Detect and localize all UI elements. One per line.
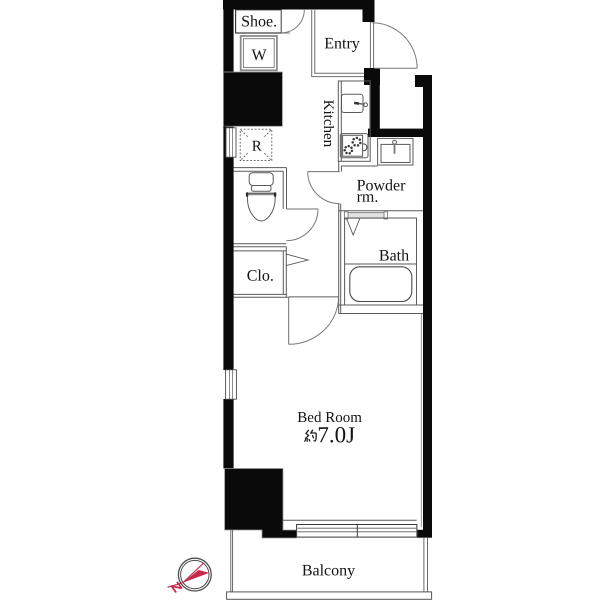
svg-text:Bath: Bath	[379, 247, 409, 264]
svg-text:Shoe.: Shoe.	[241, 13, 277, 30]
svg-text:Clo.: Clo.	[247, 268, 274, 285]
svg-text:rm.: rm.	[357, 189, 379, 206]
svg-text:7.0J: 7.0J	[317, 422, 355, 447]
svg-text:W: W	[251, 47, 267, 64]
svg-text:Entry: Entry	[324, 35, 360, 52]
svg-text:Kitchen: Kitchen	[320, 100, 336, 148]
svg-text:R: R	[252, 139, 262, 155]
svg-text:Balcony: Balcony	[302, 562, 355, 579]
